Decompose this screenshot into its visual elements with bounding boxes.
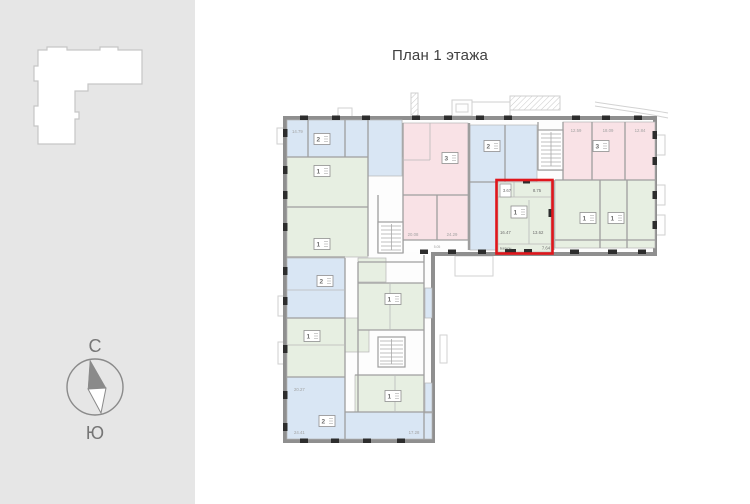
svg-text:1: 1 [317,169,321,176]
svg-text:2: 2 [487,144,491,151]
svg-text:2: 2 [317,137,321,144]
apartment-highlighted[interactable]: 3.67 8.75 16.47 13.62 Балкон 7.64 1 [497,180,553,254]
entrance-canopy [510,96,560,110]
svg-text:14.79: 14.79 [292,129,303,134]
svg-text:17.28: 17.28 [409,430,420,435]
balcony-area: 7.64 [542,246,551,251]
room-area-kitchen: 13.62 [533,230,544,235]
svg-text:1: 1 [388,394,392,401]
svg-text:1: 1 [388,297,392,304]
apartment-2-wing-a[interactable] [287,258,345,318]
staircase-right [538,130,563,170]
balcony-strip [425,288,432,318]
svg-text:3: 3 [596,144,600,151]
svg-text:24.41: 24.41 [294,430,305,435]
svg-text:1: 1 [514,210,518,217]
svg-text:12.59: 12.59 [571,128,582,133]
apartment-1-right-pair[interactable] [555,180,655,248]
staircase-wing [378,337,405,367]
staircase-top [378,222,403,253]
apartment-3-center[interactable] [403,123,468,240]
svg-text:24.29: 24.29 [447,232,458,237]
svg-text:20.27: 20.27 [294,387,305,392]
svg-text:20.08: 20.08 [408,232,419,237]
room-area-living: 16.47 [500,230,511,235]
svg-text:5.05: 5.05 [434,245,441,249]
room-area-hall: 8.75 [533,188,542,193]
svg-text:1: 1 [611,216,615,223]
svg-text:12.84: 12.84 [635,128,646,133]
apartment-1-left-a[interactable] [287,157,368,207]
room-area-bath: 3.67 [503,188,512,193]
svg-text:18.09: 18.09 [603,128,614,133]
svg-text:1: 1 [583,216,587,223]
svg-text:1: 1 [317,242,321,249]
entrance-hatch-strip [411,93,418,118]
apartment-badge: 1 [511,206,527,218]
apartment-1-wing-right-a[interactable] [358,283,424,330]
svg-text:2: 2 [320,279,324,286]
svg-text:1: 1 [307,334,311,341]
balcony-label: Балкон [500,247,511,251]
svg-text:3: 3 [445,156,449,163]
apartments [287,120,655,439]
svg-text:2: 2 [322,419,326,426]
balcony-strip [425,383,432,413]
floor-plan: 3.67 8.75 16.47 13.62 Балкон 7.64 1 2 1 … [0,0,750,504]
